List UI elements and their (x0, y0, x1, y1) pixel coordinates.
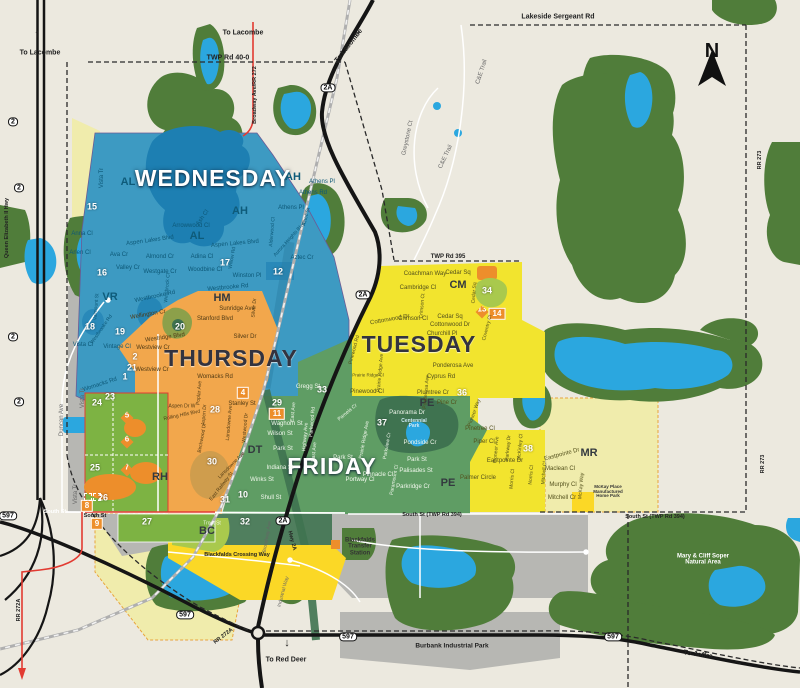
map-base (0, 0, 800, 688)
transfer-station-icon (331, 540, 340, 549)
parcel-marker-icon (93, 493, 101, 501)
parcel-marker-icon (84, 493, 92, 501)
map-canvas: WEDNESDAYTHURSDAYTUESDAYFRIDAY ALAHAHALV… (0, 0, 800, 688)
north-arrow-icon (688, 48, 732, 88)
compass-north-arrow: N (688, 48, 736, 104)
